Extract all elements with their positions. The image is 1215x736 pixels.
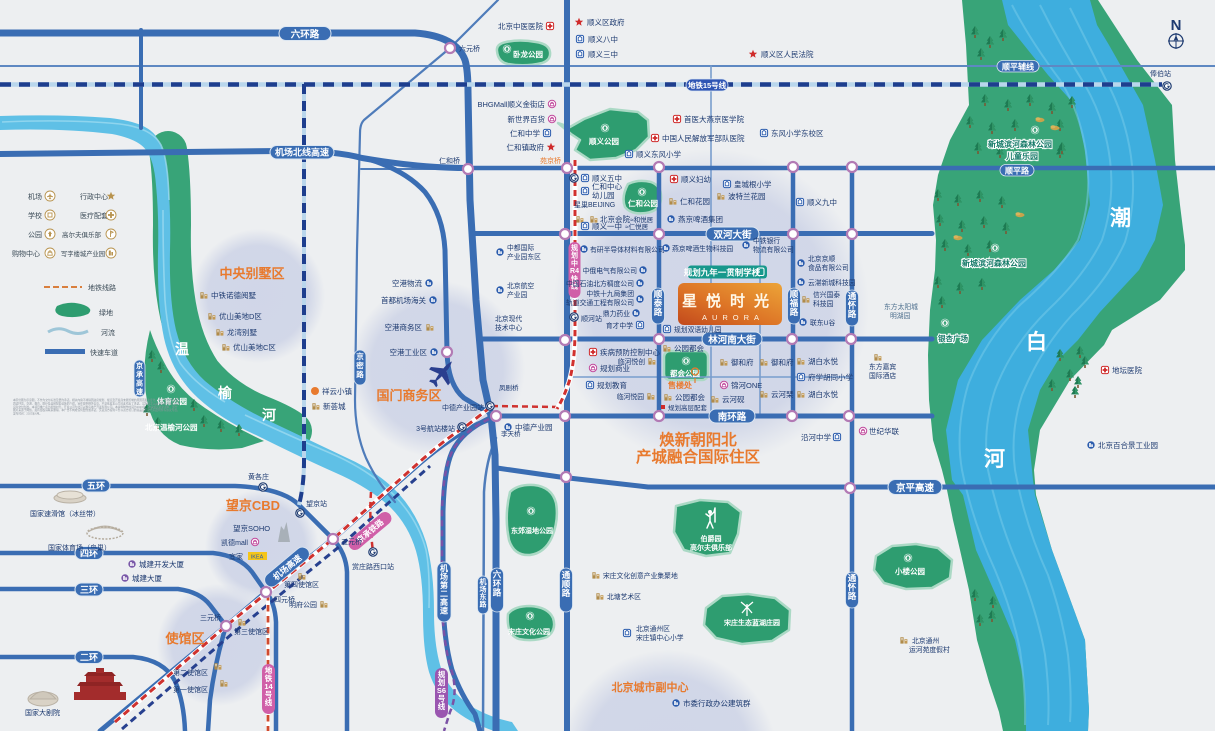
svg-text:≈仁悦居: ≈仁悦居 xyxy=(625,222,649,231)
svg-text:绿地: 绿地 xyxy=(99,308,113,317)
svg-text:国门商务区: 国门商务区 xyxy=(376,388,441,403)
svg-text:顺福路: 顺福路 xyxy=(789,289,799,317)
svg-text:三环: 三环 xyxy=(80,585,98,595)
svg-text:城建开发大厦: 城建开发大厦 xyxy=(139,559,184,569)
svg-text:行政中心: 行政中心 xyxy=(80,192,108,201)
svg-text:通怀路: 通怀路 xyxy=(848,291,857,319)
svg-text:新荟城: 新荟城 xyxy=(323,401,346,411)
svg-text:北京温榆河公园: 北京温榆河公园 xyxy=(145,422,198,432)
svg-text:顺义公园: 顺义公园 xyxy=(589,136,619,146)
svg-text:顺河站: 顺河站 xyxy=(581,314,602,323)
svg-text:府学胡同小学: 府学胡同小学 xyxy=(808,372,853,382)
svg-text:联东U谷: 联东U谷 xyxy=(810,318,836,327)
svg-text:技术中心: 技术中心 xyxy=(495,323,522,332)
svg-text:顺泰路: 顺泰路 xyxy=(653,289,663,317)
svg-text:北京百合景工业园: 北京百合景工业园 xyxy=(1098,440,1158,450)
svg-text:有研半导体材料有限公司: 有研半导体材料有限公司 xyxy=(590,245,665,254)
svg-text:望京站: 望京站 xyxy=(306,499,327,508)
svg-text:高尔夫俱乐部: 高尔夫俱乐部 xyxy=(62,230,102,239)
svg-text:顺义九中: 顺义九中 xyxy=(807,197,837,207)
svg-text:苑京桥: 苑京桥 xyxy=(540,156,561,165)
svg-text:首都机场海关: 首都机场海关 xyxy=(381,295,426,305)
svg-text:云河琹: 云河琹 xyxy=(771,390,794,399)
svg-text:规划商业: 规划商业 xyxy=(600,363,630,373)
svg-text:轨道交通工程有限公司: 轨道交通工程有限公司 xyxy=(566,298,634,307)
svg-text:规划高层配套: 规划高层配套 xyxy=(668,403,708,412)
svg-text:第一使馆区: 第一使馆区 xyxy=(173,685,208,694)
svg-text:售楼处: 售楼处 xyxy=(667,380,693,390)
svg-text:世纪华联: 世纪华联 xyxy=(869,426,899,436)
svg-text:宋庄生态蓝湖庄园: 宋庄生态蓝湖庄园 xyxy=(723,618,780,627)
svg-text:鼎力药业: 鼎力药业 xyxy=(603,309,630,318)
svg-text:城建大厦: 城建大厦 xyxy=(132,573,162,583)
svg-text:三元桥: 三元桥 xyxy=(200,613,221,622)
svg-text:仁和镇政府: 仁和镇政府 xyxy=(507,142,545,152)
svg-text:发布时间：2023年6月。: 发布时间：2023年6月。 xyxy=(13,412,42,416)
svg-text:湖白水悦: 湖白水悦 xyxy=(808,389,838,399)
svg-text:北京现代: 北京现代 xyxy=(495,314,522,323)
svg-text:幼儿园: 幼儿园 xyxy=(592,190,615,200)
svg-text:沿河中学: 沿河中学 xyxy=(801,432,831,442)
svg-text:机场: 机场 xyxy=(28,192,42,201)
svg-text:俸伯站: 俸伯站 xyxy=(1150,69,1171,78)
svg-text:星悦时光: 星悦时光 xyxy=(682,292,778,310)
svg-text:林河南大街: 林河南大街 xyxy=(708,334,756,346)
svg-text:仁和花园: 仁和花园 xyxy=(680,196,710,206)
svg-text:科技园: 科技园 xyxy=(813,299,834,308)
svg-text:中铁银行: 中铁银行 xyxy=(753,236,780,245)
svg-text:BHGMall顺义金街店: BHGMall顺义金街店 xyxy=(477,99,545,109)
svg-text:高尔夫俱乐部: 高尔夫俱乐部 xyxy=(690,543,732,552)
svg-text:南环路: 南环路 xyxy=(718,411,747,423)
svg-text:产城融合国际住区: 产城融合国际住区 xyxy=(636,447,761,466)
svg-text:东方太阳城: 东方太阳城 xyxy=(884,302,918,311)
svg-text:赏庄路西口站: 赏庄路西口站 xyxy=(352,562,394,571)
svg-text:六元桥: 六元桥 xyxy=(459,44,480,53)
svg-text:规划S6号线: 规划S6号线 xyxy=(437,669,446,711)
svg-text:周边环境、交通、教育、医疗及其他配套设施的介绍，旨在提供相关: 周边环境、交通、教育、医疗及其他配套设施的介绍，旨在提供相关信息，不意味着本公司… xyxy=(13,401,180,405)
svg-text:五环: 五环 xyxy=(87,481,105,491)
svg-text:顺义八中: 顺义八中 xyxy=(588,34,618,44)
svg-text:疾病预防控制中心: 疾病预防控制中心 xyxy=(600,347,660,357)
svg-text:机场北线高速: 机场北线高速 xyxy=(275,147,329,158)
svg-text:临河悦园: 临河悦园 xyxy=(617,392,644,401)
svg-text:国家速滑馆（冰丝带）: 国家速滑馆（冰丝带） xyxy=(30,509,100,518)
svg-text:宋庄文化公园: 宋庄文化公园 xyxy=(507,627,550,636)
svg-text:产业园东区: 产业园东区 xyxy=(507,252,541,261)
svg-text:购物中心: 购物中心 xyxy=(12,249,40,258)
svg-text:北京通州区: 北京通州区 xyxy=(636,624,670,633)
svg-text:地铁14号线: 地铁14号线 xyxy=(264,665,273,707)
svg-text:中铁十九局集团: 中铁十九局集团 xyxy=(586,289,634,298)
svg-text:优山美地C区: 优山美地C区 xyxy=(233,342,276,352)
svg-text:国家体育场（鸟巢）: 国家体育场（鸟巢） xyxy=(48,543,111,552)
svg-text:市委行政办公建筑群: 市委行政办公建筑群 xyxy=(683,698,751,708)
svg-text:东风小学东校区: 东风小学东校区 xyxy=(771,128,824,138)
svg-text:医疗配套: 医疗配套 xyxy=(80,211,108,220)
svg-text:锦河ONE: 锦河ONE xyxy=(731,380,762,390)
svg-text:仁和中心: 仁和中心 xyxy=(592,181,622,191)
svg-text:凯德mall: 凯德mall xyxy=(221,538,248,547)
svg-text:中国人民解放军部队医院: 中国人民解放军部队医院 xyxy=(662,133,745,143)
svg-text:公园都会: 公园都会 xyxy=(675,392,705,402)
svg-text:北京通州: 北京通州 xyxy=(912,636,939,645)
svg-text:中俄电气有限公司: 中俄电气有限公司 xyxy=(583,266,638,275)
svg-text:京密路: 京密路 xyxy=(356,351,364,379)
svg-text:产业园: 产业园 xyxy=(507,290,528,299)
svg-text:育才中学: 育才中学 xyxy=(606,321,633,330)
svg-text:地铁15号线: 地铁15号线 xyxy=(688,80,727,90)
svg-text:通怀路: 通怀路 xyxy=(848,573,857,601)
svg-text:空港物流: 空港物流 xyxy=(392,278,422,288)
svg-text:燕京啤酒生物科技园: 燕京啤酒生物科技园 xyxy=(672,244,733,253)
svg-text:新世界百货: 新世界百货 xyxy=(508,114,546,124)
svg-text:温: 温 xyxy=(175,341,189,357)
svg-text:二环: 二环 xyxy=(80,653,98,663)
svg-text:龙湾别墅: 龙湾别墅 xyxy=(227,327,257,337)
svg-text:潮: 潮 xyxy=(1110,207,1131,230)
svg-text:地坛医院: 地坛医院 xyxy=(1112,365,1142,375)
svg-text:机场东路: 机场东路 xyxy=(480,577,488,609)
svg-text:中央别墅区: 中央别墅区 xyxy=(219,266,284,281)
svg-text:波特兰花园: 波特兰花园 xyxy=(728,191,766,201)
svg-text:规划双语幼儿园: 规划双语幼儿园 xyxy=(674,325,722,334)
svg-text:中德产业园站: 中德产业园站 xyxy=(442,403,484,412)
svg-text:六环路: 六环路 xyxy=(493,570,502,598)
svg-text:云湛新城科技园: 云湛新城科技园 xyxy=(808,278,856,287)
svg-text:N: N xyxy=(1171,17,1182,34)
svg-text:首医大燕京医学院: 首医大燕京医学院 xyxy=(684,114,744,124)
svg-text:顺义东风小学: 顺义东风小学 xyxy=(636,149,681,159)
svg-text:中德产业园: 中德产业园 xyxy=(515,422,553,432)
svg-text:新城滨河森林公园: 新城滨河森林公园 xyxy=(988,139,1052,149)
svg-text:新城滨河森林公园: 新城滨河森林公园 xyxy=(962,258,1026,268)
svg-text:星巢BEIJING: 星巢BEIJING xyxy=(574,200,615,209)
svg-text:榆: 榆 xyxy=(218,385,233,401)
svg-text:顺义区政府: 顺义区政府 xyxy=(587,17,625,27)
svg-text:信兴国泰: 信兴国泰 xyxy=(813,290,840,299)
svg-text:北京京顺: 北京京顺 xyxy=(808,254,835,263)
svg-text:快速车道: 快速车道 xyxy=(90,348,118,357)
svg-text:中铁诺德阅墅: 中铁诺德阅墅 xyxy=(211,290,256,300)
svg-text:明府公园: 明府公园 xyxy=(289,600,317,609)
svg-text:顺义妇幼: 顺义妇幼 xyxy=(681,174,711,184)
svg-text:北京城市副中心: 北京城市副中心 xyxy=(612,680,689,694)
svg-text:实际交付为准。本项目推广名为星悦时光，开发公司为北京兴悦房地: 实际交付为准。本项目推广名为星悦时光，开发公司为北京兴悦房地产开发有限公司。本资… xyxy=(13,405,178,409)
svg-text:望京CBD: 望京CBD xyxy=(226,498,280,513)
svg-text:明湖园: 明湖园 xyxy=(890,311,911,320)
svg-text:宋庄文化创意产业集聚地: 宋庄文化创意产业集聚地 xyxy=(603,571,678,580)
svg-text:地铁线路: 地铁线路 xyxy=(88,283,116,292)
svg-text:御和府: 御和府 xyxy=(731,357,754,367)
svg-text:本区位图为示意图，不作为交付标准及要约承诺，相关内容不排除因: 本区位图为示意图，不作为交付标准及要约承诺，相关内容不排除因政府规划、规定及开发… xyxy=(13,398,180,402)
svg-text:都会公园: 都会公园 xyxy=(669,368,700,378)
svg-text:云河砚: 云河砚 xyxy=(722,395,745,404)
svg-text:宋庄镇中心小学: 宋庄镇中心小学 xyxy=(636,633,684,642)
svg-text:机场第二高速: 机场第二高速 xyxy=(440,563,448,616)
svg-text:顺义区人民法院: 顺义区人民法院 xyxy=(761,49,814,59)
svg-text:御和府: 御和府 xyxy=(771,357,794,367)
svg-text:中国石油北方稠度公司: 中国石油北方稠度公司 xyxy=(566,279,634,288)
svg-text:河流: 河流 xyxy=(101,328,115,337)
svg-text:仁和公园: 仁和公园 xyxy=(628,198,658,208)
svg-text:白: 白 xyxy=(1026,330,1047,354)
svg-text:顺义三中: 顺义三中 xyxy=(588,49,618,59)
svg-text:通顺路: 通顺路 xyxy=(562,570,571,598)
svg-text:河: 河 xyxy=(984,448,1005,471)
svg-text:AURORA: AURORA xyxy=(702,313,764,322)
svg-text:空港工业区: 空港工业区 xyxy=(390,347,428,357)
svg-text:物流有限公司: 物流有限公司 xyxy=(753,245,794,254)
svg-text:黄各庄: 黄各庄 xyxy=(248,472,269,481)
svg-text:公园: 公园 xyxy=(28,231,42,239)
svg-text:优山美地D区: 优山美地D区 xyxy=(219,311,262,321)
svg-text:学校: 学校 xyxy=(28,211,42,220)
svg-text:公园都会: 公园都会 xyxy=(674,343,704,353)
svg-text:IKEA: IKEA xyxy=(251,555,264,561)
svg-text:小楼公园: 小楼公园 xyxy=(895,566,925,576)
svg-text:北京航空: 北京航空 xyxy=(507,281,534,290)
svg-text:3号航站楼站: 3号航站楼站 xyxy=(416,424,455,433)
svg-text:空港商务区: 空港商务区 xyxy=(385,322,423,332)
svg-text:宜家: 宜家 xyxy=(229,552,243,561)
svg-text:北塘艺术区: 北塘艺术区 xyxy=(607,592,641,601)
svg-text:顺平路: 顺平路 xyxy=(1005,166,1030,176)
svg-text:东郊湿地公园: 东郊湿地公园 xyxy=(511,526,553,535)
svg-text:第三使馆区: 第三使馆区 xyxy=(234,627,269,636)
svg-text:北京中医医院: 北京中医医院 xyxy=(498,21,543,31)
svg-text:卧龙公园: 卧龙公园 xyxy=(513,49,543,59)
svg-text:儿童乐园: 儿童乐园 xyxy=(1005,151,1038,161)
svg-text:东方嘉宾: 东方嘉宾 xyxy=(869,362,896,371)
svg-text:河: 河 xyxy=(262,407,276,423)
svg-text:图片来源于网络，如有侵权请联系删除。本广告不构成任何要约或承: 图片来源于网络，如有侵权请联系删除。本广告不构成任何要约或承诺，买卖双方权利义务… xyxy=(13,408,180,412)
svg-text:国际酒店: 国际酒店 xyxy=(869,371,896,380)
svg-text:顺平辅线: 顺平辅线 xyxy=(1002,62,1034,72)
svg-text:湖白水悦: 湖白水悦 xyxy=(808,356,838,366)
svg-text:凤剧桥: 凤剧桥 xyxy=(499,383,519,392)
svg-text:银杏广场: 银杏广场 xyxy=(938,333,968,343)
svg-text:食品有限公司: 食品有限公司 xyxy=(808,263,849,272)
svg-text:望京SOHO: 望京SOHO xyxy=(233,523,270,533)
svg-text:≈和悦居: ≈和悦居 xyxy=(630,215,654,224)
svg-text:双河大街: 双河大街 xyxy=(712,229,752,241)
svg-text:顺义一中: 顺义一中 xyxy=(592,221,622,231)
svg-text:京承高速: 京承高速 xyxy=(136,361,143,396)
svg-text:伯爵园: 伯爵园 xyxy=(700,534,722,543)
svg-text:五元桥: 五元桥 xyxy=(341,537,362,546)
svg-text:祥云小镇: 祥云小镇 xyxy=(322,386,352,396)
svg-text:规划九年一贯制学校: 规划九年一贯制学校 xyxy=(684,268,761,278)
svg-text:写字楼城产业园: 写字楼城产业园 xyxy=(61,249,105,258)
svg-text:第二使馆区: 第二使馆区 xyxy=(173,668,208,677)
svg-text:仁和桥: 仁和桥 xyxy=(439,156,460,165)
svg-text:六环路: 六环路 xyxy=(291,29,320,41)
svg-text:中都国际: 中都国际 xyxy=(507,243,534,252)
svg-text:京平高速: 京平高速 xyxy=(896,482,935,494)
svg-text:焕新朝阳北: 焕新朝阳北 xyxy=(659,430,737,449)
svg-text:皇城根小学: 皇城根小学 xyxy=(734,179,772,189)
svg-text:燕京啤酒集团: 燕京啤酒集团 xyxy=(678,214,723,224)
svg-text:使馆区: 使馆区 xyxy=(164,631,204,646)
svg-text:规划教育: 规划教育 xyxy=(597,380,627,390)
svg-text:国家大剧院: 国家大剧院 xyxy=(25,708,60,717)
svg-text:仁和中学: 仁和中学 xyxy=(510,128,540,138)
svg-text:运河苑度假村: 运河苑度假村 xyxy=(909,645,950,654)
svg-text:第四使馆区: 第四使馆区 xyxy=(284,580,319,589)
